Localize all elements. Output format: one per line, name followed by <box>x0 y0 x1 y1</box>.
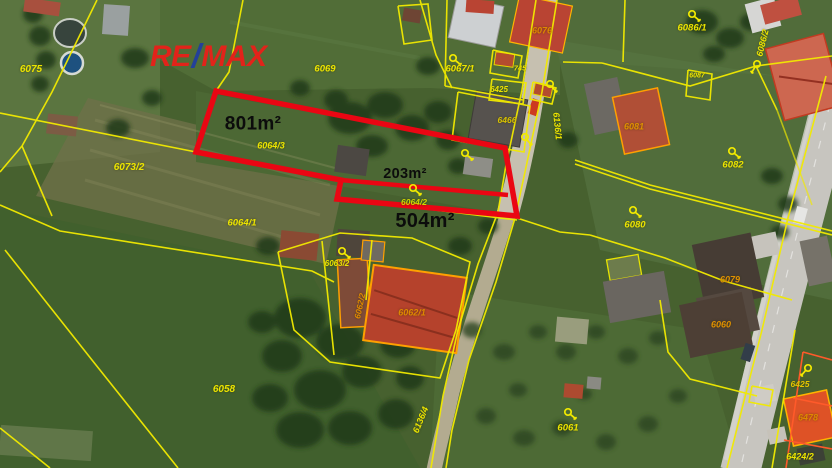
remax-logo-max: MAX <box>201 40 266 73</box>
remax-logo-re: RE <box>150 40 191 73</box>
satellite-map-canvas <box>0 0 832 468</box>
remax-logo: RE/MAX <box>150 38 267 72</box>
cadastral-map-image: 60756073/260696064/36064/16064/26067/174… <box>0 0 832 468</box>
satellite-fields <box>0 0 832 468</box>
remax-logo-slash: / <box>192 37 201 74</box>
